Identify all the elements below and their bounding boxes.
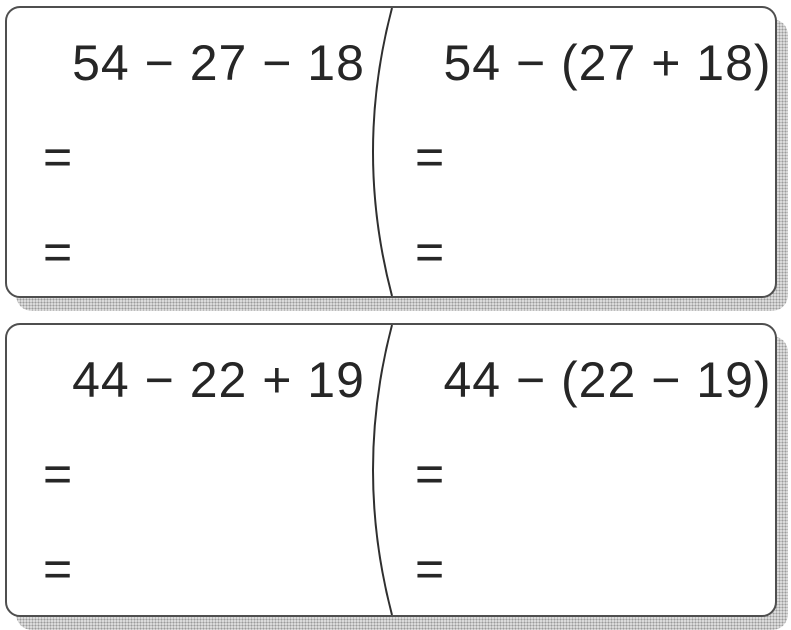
card-body: 44 − 22 + 19 = = 44 − (22 − 19) = = [5, 323, 777, 617]
equals-answer-line: = [415, 449, 444, 499]
problem-card-2: 44 − 22 + 19 = = 44 − (22 − 19) = = [5, 323, 777, 617]
equals-answer-line: = [43, 227, 72, 277]
expression: 44 − (22 − 19) [416, 355, 777, 405]
card1-right-problem: 54 − (27 + 18) = = [392, 8, 775, 296]
equals-answer-line: = [43, 132, 72, 182]
expression: 54 − (27 + 18) [416, 38, 777, 88]
card-body: 54 − 27 − 18 = = 54 − (27 + 18) = = [5, 6, 777, 298]
card2-left-problem: 44 − 22 + 19 = = [7, 325, 392, 615]
expression: 54 − 27 − 18 [26, 38, 411, 88]
equals-answer-line: = [415, 227, 444, 277]
equals-answer-line: = [415, 544, 444, 594]
card1-left-problem: 54 − 27 − 18 = = [7, 8, 392, 296]
equals-answer-line: = [415, 132, 444, 182]
expression: 44 − 22 + 19 [26, 355, 411, 405]
equals-answer-line: = [43, 544, 72, 594]
problem-card-1: 54 − 27 − 18 = = 54 − (27 + 18) = = [5, 6, 777, 298]
card2-right-problem: 44 − (22 − 19) = = [392, 325, 775, 615]
equals-answer-line: = [43, 449, 72, 499]
